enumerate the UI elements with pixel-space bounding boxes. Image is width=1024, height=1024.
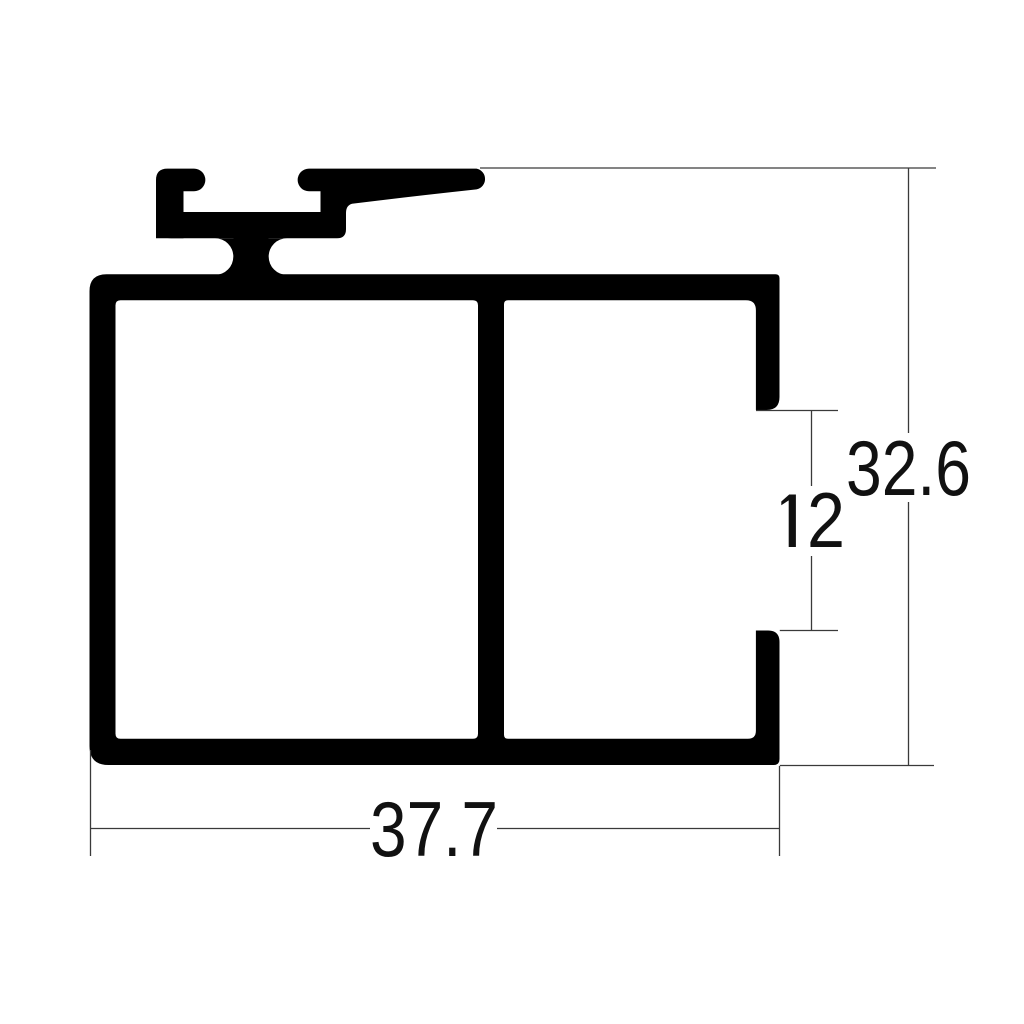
- svg-text:37.7: 37.7: [370, 785, 498, 873]
- svg-text:32.6: 32.6: [846, 424, 971, 512]
- svg-text:2: 2: [807, 476, 845, 564]
